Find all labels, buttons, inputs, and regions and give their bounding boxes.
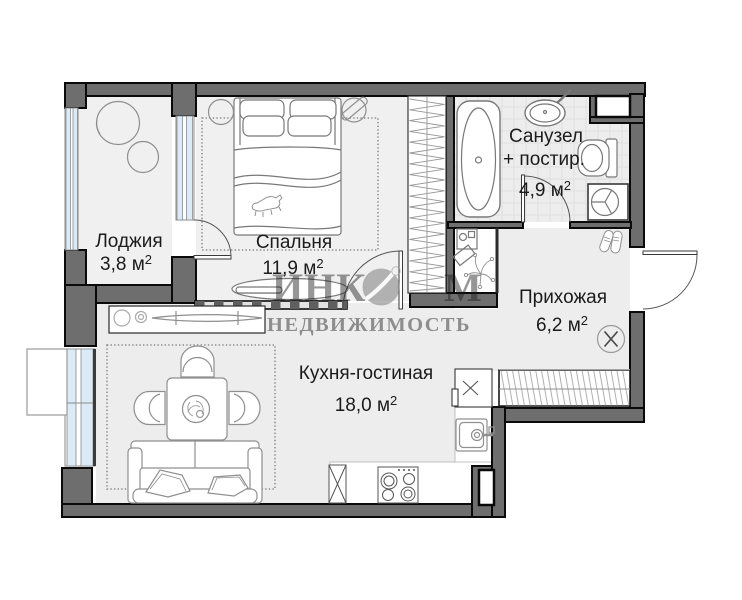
svg-text:Лоджия: Лоджия [95,231,162,252]
svg-text:6,2 м2: 6,2 м2 [536,313,588,336]
svg-text:НЕДВИЖИМОСТЬ: НЕДВИЖИМОСТЬ [267,314,471,336]
svg-text:Спальня: Спальня [256,232,332,253]
svg-text:+ постир.: + постир. [503,149,585,170]
svg-text:11,9 м2: 11,9 м2 [262,256,323,279]
svg-text:Кухня-гостиная: Кухня-гостиная [299,363,433,384]
svg-text:4,9 м2: 4,9 м2 [519,178,571,201]
svg-text:Санузел: Санузел [509,126,583,147]
svg-text:3,8 м2: 3,8 м2 [100,252,152,275]
svg-text:Прихожая: Прихожая [519,287,607,308]
svg-text:18,0 м2: 18,0 м2 [335,393,398,416]
svg-text:М: М [444,265,482,310]
